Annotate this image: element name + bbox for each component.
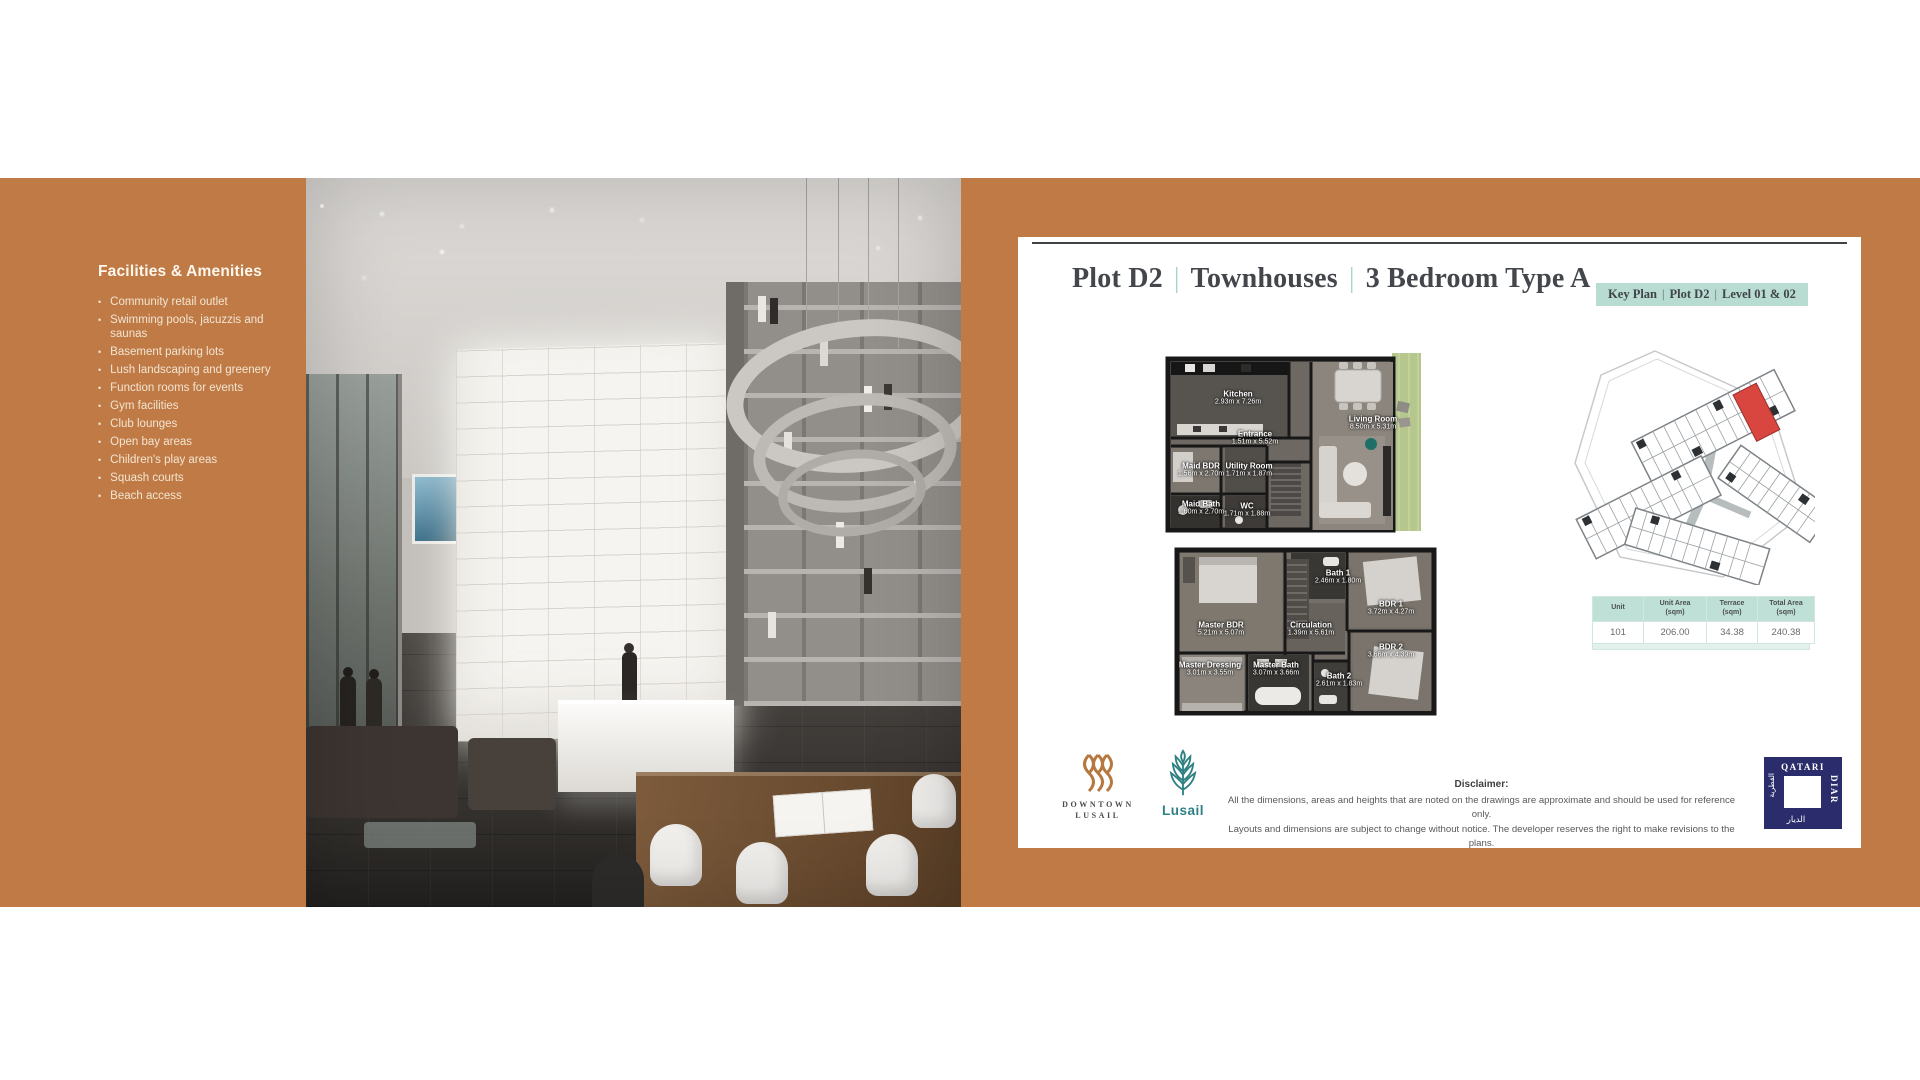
room-label: BDR 23.66m x 4.39m [1368, 642, 1414, 659]
room-label: Master Dressing3.01m x 3.55m [1179, 660, 1241, 677]
room-label: Maid Bath1.60m x 2.70m [1178, 499, 1224, 516]
room-label: Kitchen2.93m x 7.26m [1215, 389, 1261, 406]
keytag-separator: | [1662, 287, 1665, 301]
bullet-icon: • [98, 345, 101, 359]
disclaimer-line: All the dimensions, areas and heights th… [1218, 794, 1745, 823]
disclaimer: Disclaimer: All the dimensions, areas an… [1218, 779, 1745, 852]
list-item-label: Basement parking lots [110, 345, 224, 359]
title-type: Townhouses [1191, 263, 1338, 294]
lusail-wordmark: Lusail [1160, 803, 1206, 818]
bullet-icon: • [98, 381, 101, 395]
list-item-label: Gym facilities [110, 399, 178, 413]
list-item: •Children's play areas [98, 453, 288, 467]
room-label: WC1.71m x 1.88m [1224, 501, 1270, 518]
brochure-page: Plot D2|Townhouses|3 Bedroom Type A Key … [1018, 237, 1861, 848]
facilities-list: •Community retail outlet •Swimming pools… [98, 295, 288, 503]
list-item-label: Function rooms for events [110, 381, 243, 395]
vignette [306, 178, 961, 907]
floorplan-level-01: Kitchen2.93m x 7.26m Entrance1.51m x 5.5… [1163, 350, 1452, 535]
bullet-icon: • [98, 417, 101, 431]
qatari-diar-arabic-bottom: الديار [1764, 814, 1828, 825]
list-item: •Gym facilities [98, 399, 288, 413]
column-header: Terrace(sqm) [1707, 597, 1758, 622]
lusail-logo: Lusail [1160, 749, 1206, 818]
list-item-label: Community retail outlet [110, 295, 228, 309]
disclaimer-title: Disclaimer: [1218, 779, 1745, 790]
room-label: Bath 22.61m x 1.83m [1316, 671, 1362, 688]
bullet-icon: • [98, 399, 101, 413]
title-separator: | [1174, 263, 1180, 294]
list-item-label: Club lounges [110, 417, 177, 431]
list-item: •Swimming pools, jacuzzis and saunas [98, 313, 288, 341]
key-plan-drawing [1565, 345, 1815, 585]
bullet-icon: • [98, 489, 101, 503]
facilities-heading: Facilities & Amenities [98, 263, 288, 281]
brochure-canvas: Facilities & Amenities •Community retail… [0, 0, 1920, 1080]
list-item: •Lush landscaping and greenery [98, 363, 288, 377]
list-item-label: Squash courts [110, 471, 184, 485]
room-label: Master Bath3.07m x 3.66m [1253, 660, 1299, 677]
downtown-lusail-wordmark: DOWNTOWNLUSAIL [1048, 800, 1148, 822]
title-bedroom: 3 Bedroom Type A [1366, 263, 1591, 294]
page-title: Plot D2|Townhouses|3 Bedroom Type A [1072, 263, 1591, 295]
total-area-cell: 240.38 [1758, 621, 1815, 643]
room-label: Circulation1.39m x 5.61m [1288, 620, 1334, 637]
list-item: •Function rooms for events [98, 381, 288, 395]
table-footer-strip [1592, 644, 1810, 650]
table-row: 101 206.00 34.38 240.38 [1593, 621, 1815, 643]
list-item-label: Open bay areas [110, 435, 192, 449]
terrace-cell: 34.38 [1707, 621, 1758, 643]
room-label: BDR 13.72m x 4.27m [1368, 599, 1414, 616]
qatari-diar-logo: QATARI DIAR القطرية الديار [1764, 757, 1842, 829]
room-label: Entrance1.51m x 5.52m [1232, 429, 1278, 446]
keytag-separator: | [1714, 287, 1717, 301]
lobby-rendering [306, 178, 961, 907]
title-separator: | [1349, 263, 1355, 294]
list-item: •Club lounges [98, 417, 288, 431]
facilities-panel: Facilities & Amenities •Community retail… [98, 263, 288, 507]
qatari-diar-inner-square [1784, 776, 1821, 808]
bullet-icon: • [98, 295, 101, 309]
column-header: Total Area(sqm) [1758, 597, 1815, 622]
unit-area-table: Unit Unit Area(sqm) Terrace(sqm) Total A… [1592, 596, 1810, 650]
bullet-icon: • [98, 453, 101, 467]
table-header-row: Unit Unit Area(sqm) Terrace(sqm) Total A… [1593, 597, 1815, 622]
qatari-diar-wordmark-side: DIAR [1829, 775, 1839, 804]
column-header: Unit [1593, 597, 1644, 622]
bullet-icon: • [98, 363, 101, 377]
room-label: Utility Room1.71m x 1.87m [1225, 461, 1272, 478]
key-plan [1565, 345, 1815, 585]
list-item: •Community retail outlet [98, 295, 288, 309]
room-label: Master BDR5.21m x 5.07m [1198, 620, 1244, 637]
lusail-palm-icon [1166, 749, 1200, 797]
column-header: Unit Area(sqm) [1644, 597, 1707, 622]
keytag-part: Level 01 & 02 [1722, 287, 1796, 301]
room-label: Bath 12.46m x 1.80m [1315, 568, 1361, 585]
keytag-part: Key Plan [1608, 287, 1657, 301]
bullet-icon: • [98, 313, 101, 341]
qatari-diar-wordmark-top: QATARI [1764, 762, 1842, 772]
keyplan-tag: Key Plan|Plot D2|Level 01 & 02 [1596, 283, 1808, 306]
list-item: •Beach access [98, 489, 288, 503]
room-label: Maid BDR1.56m x 2.70m [1178, 461, 1224, 478]
unit-area-cell: 206.00 [1644, 621, 1707, 643]
top-rule [1032, 242, 1847, 244]
qatari-diar-arabic-side: القطرية [1767, 773, 1776, 798]
list-item-label: Lush landscaping and greenery [110, 363, 270, 377]
disclaimer-line: Layouts and dimensions are subject to ch… [1218, 823, 1745, 852]
floorplan-level-02: Master BDR5.21m x 5.07m Bath 12.46m x 1.… [1173, 545, 1438, 718]
keytag-part: Plot D2 [1670, 287, 1710, 301]
list-item: •Open bay areas [98, 435, 288, 449]
unit-cell: 101 [1593, 621, 1644, 643]
bullet-icon: • [98, 435, 101, 449]
bullet-icon: • [98, 471, 101, 485]
list-item-label: Beach access [110, 489, 182, 503]
room-label: Living Room8.50m x 5.31m [1349, 414, 1397, 431]
list-item-label: Children's play areas [110, 453, 217, 467]
downtown-lusail-logo: DOWNTOWNLUSAIL [1048, 751, 1148, 822]
list-item-label: Swimming pools, jacuzzis and saunas [110, 313, 288, 341]
downtown-lusail-icon [1075, 751, 1121, 795]
title-plot: Plot D2 [1072, 263, 1163, 294]
list-item: •Basement parking lots [98, 345, 288, 359]
list-item: •Squash courts [98, 471, 288, 485]
